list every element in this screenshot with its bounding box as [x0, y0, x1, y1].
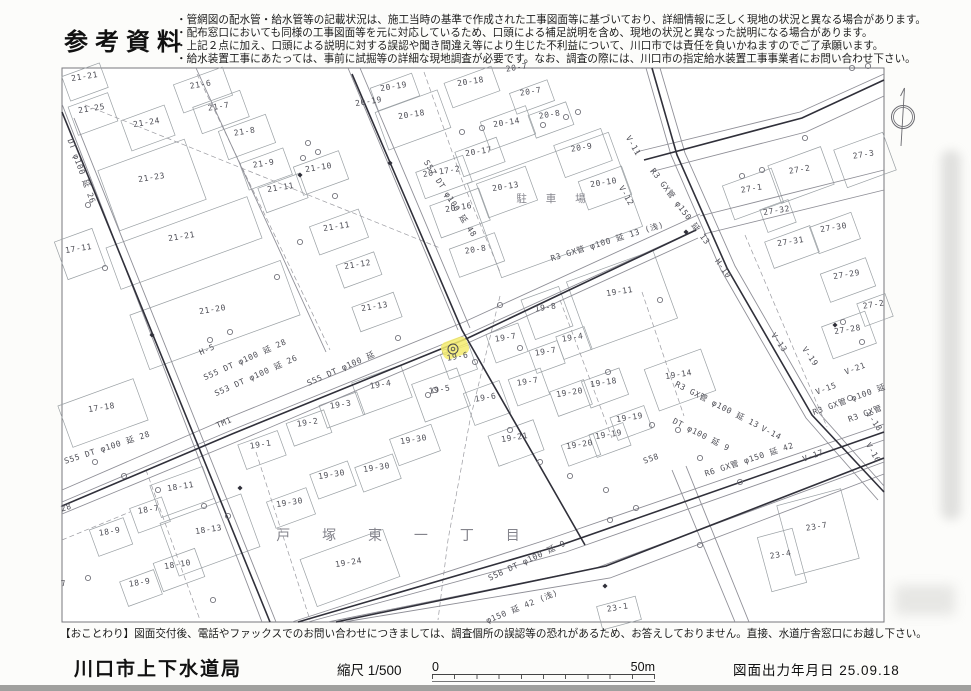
district-name-label: 戸 塚 東 一 丁 目 — [276, 527, 533, 543]
disclaimer-note: 【おことわり】図面交付後、電話やファックスでのお問い合わせにつきましては、調査個… — [60, 626, 927, 641]
header-note-4: ・給水装置工事にあたっては、事前に試掘等の詳細な現地調査が必要です。なお、調査の… — [176, 51, 916, 66]
scale-label: 縮尺 1/500 — [337, 659, 402, 679]
map-canvas: 21-2121-2521-2421-621-721-821-921-1021-1… — [0, 0, 971, 691]
page-title: 参考資料 — [64, 22, 188, 57]
scan-edge-smudge — [941, 150, 961, 520]
scan-bottom-shadow — [0, 685, 971, 691]
scan-corner-smudge — [895, 585, 955, 615]
scale-bar-ruler — [432, 674, 655, 682]
output-date: 図面出力年月日 25.09.18 — [733, 659, 900, 679]
scale-bar: 0 50m — [432, 660, 655, 682]
scale-bar-end: 50m — [631, 660, 655, 674]
scale-bar-start: 0 — [432, 660, 439, 674]
organization-name: 川口市上下水道局 — [74, 654, 242, 681]
parking-lot-label: 駐 車 場 — [516, 192, 593, 205]
